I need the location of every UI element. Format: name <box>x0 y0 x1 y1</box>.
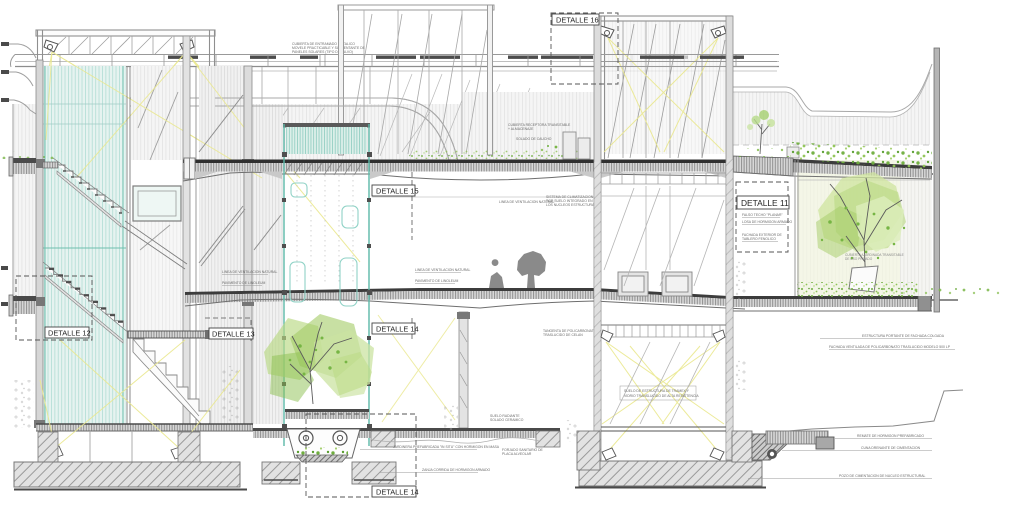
svg-text:SOLADO CERAMICO: SOLADO CERAMICO <box>490 418 524 422</box>
svg-text:DETALLE 12: DETALLE 12 <box>48 329 91 338</box>
svg-text:TRASLUCIDO DE CELAN: TRASLUCIDO DE CELAN <box>543 333 583 337</box>
svg-text:REMATE DE HORMIGON PREFABRICAD: REMATE DE HORMIGON PREFABRICADO <box>857 434 924 438</box>
svg-text:TABLERO FENOLICO: TABLERO FENOLICO <box>742 237 776 241</box>
svg-text:PAVIMENTO DE LINOLEUM: PAVIMENTO DE LINOLEUM <box>222 281 266 285</box>
svg-text:DE USO PRIVADO: DE USO PRIVADO <box>845 257 873 261</box>
svg-text:PAVIMENTO DE LINOLEUM: PAVIMENTO DE LINOLEUM <box>415 279 459 283</box>
svg-text:DETALLE 13: DETALLE 13 <box>212 330 255 339</box>
svg-text:ESTRUCTURA PORTANTE DE FACHADA: ESTRUCTURA PORTANTE DE FACHADA COLGADA <box>862 334 945 338</box>
svg-text:POZO DE CIMENTACION DE NUCLEO: POZO DE CIMENTACION DE NUCLEO ESTRUCTURA… <box>839 474 926 478</box>
svg-text:DETALLE 16: DETALLE 16 <box>556 16 599 25</box>
svg-text:SOLADO DE CAUCHO: SOLADO DE CAUCHO <box>516 137 552 141</box>
svg-text:DETALLE 11: DETALLE 11 <box>741 198 789 208</box>
svg-text:FACHADA VENTILADA DE POLICARBO: FACHADA VENTILADA DE POLICARBONATO TRASL… <box>829 345 951 349</box>
svg-text:SUELO DE ESTRUCTURA DE TRAMEX: SUELO DE ESTRUCTURA DE TRAMEX Y <box>624 389 690 393</box>
svg-text:LINEA DE VENTILACION NATURAL: LINEA DE VENTILACION NATURAL <box>415 268 470 272</box>
svg-text:LINEA DE VENTILACION NATURAL: LINEA DE VENTILACION NATURAL <box>222 270 277 274</box>
svg-text:LOSA DE HORMIGON ARMADO: LOSA DE HORMIGON ARMADO <box>742 220 792 224</box>
svg-text:DETALLE 14: DETALLE 14 <box>376 325 419 334</box>
svg-text:DETALLE 14: DETALLE 14 <box>376 488 419 497</box>
svg-text:CUNA DRENANTE DE CIMENTACION: CUNA DRENANTE DE CIMENTACION <box>861 446 921 450</box>
svg-text:PLACA ALVEOLAR: PLACA ALVEOLAR <box>502 452 532 456</box>
svg-text:VIDRIO TRANSLUCIDO DE ALTA RES: VIDRIO TRANSLUCIDO DE ALTA RESISTENCIA <box>624 394 699 398</box>
svg-text:+ ALMACENAJE: + ALMACENAJE <box>508 127 534 131</box>
svg-text:FALSO TECHO "PLANAR": FALSO TECHO "PLANAR" <box>742 213 783 217</box>
svg-text:LOS NUCLEOS ESTRUCTURALES: LOS NUCLEOS ESTRUCTURALES <box>546 203 601 207</box>
svg-text:ZANJA CORRIDA DE HORMIGON ARMA: ZANJA CORRIDA DE HORMIGON ARMADO <box>422 468 491 472</box>
svg-text:JARDINERA PREFABRICADA "IN SIT: JARDINERA PREFABRICADA "IN SITU" CON HOR… <box>393 445 500 449</box>
svg-text:DETALLE 15: DETALLE 15 <box>376 187 419 196</box>
